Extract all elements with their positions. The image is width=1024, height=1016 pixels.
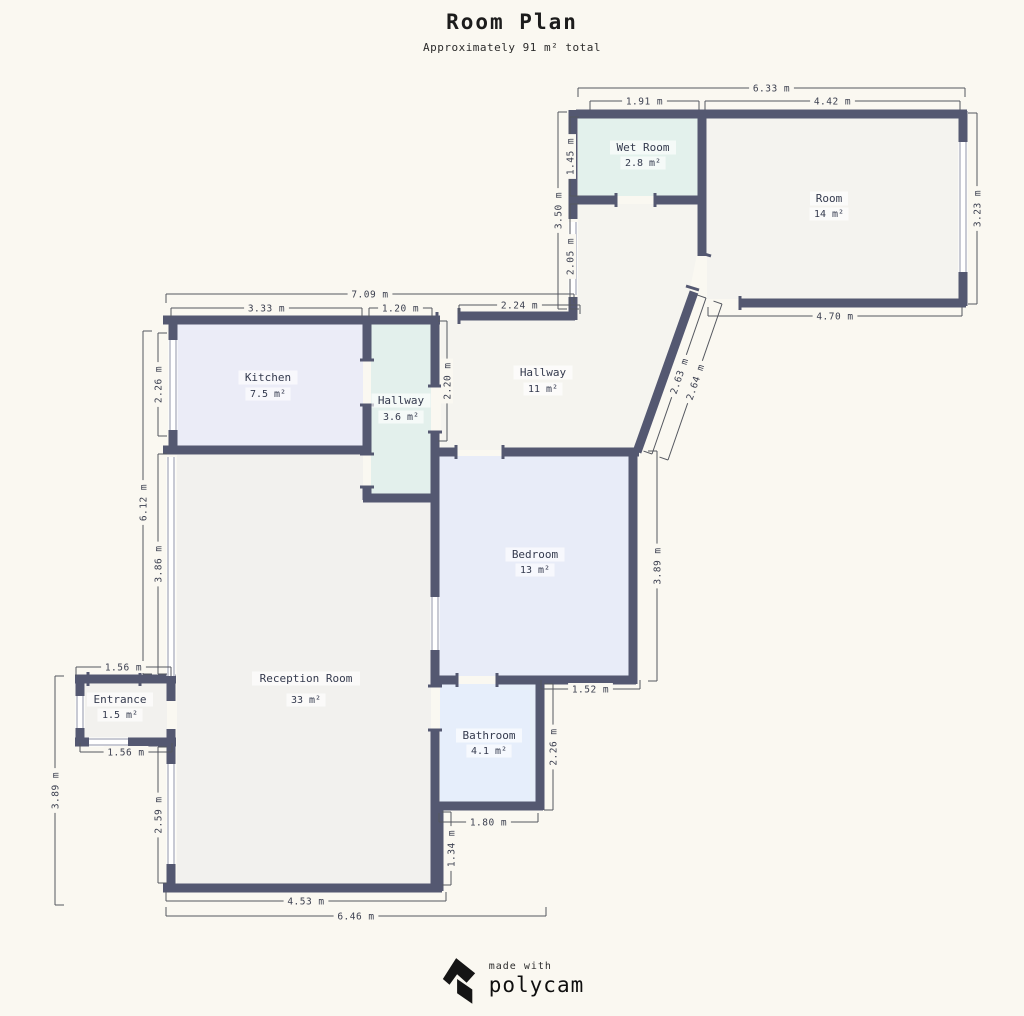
- svg-text:2.59 m: 2.59 m: [154, 796, 165, 833]
- svg-text:2.20 m: 2.20 m: [443, 362, 454, 399]
- window: [432, 597, 438, 650]
- room-reception-room: [177, 455, 431, 884]
- svg-text:3.23 m: 3.23 m: [973, 190, 984, 227]
- window: [960, 142, 966, 272]
- dimension-26-2.26-m: 2.26 m: [544, 684, 560, 810]
- svg-text:1.56 m: 1.56 m: [105, 663, 142, 674]
- svg-text:4.53 m: 4.53 m: [287, 897, 324, 908]
- plan-footer: made with polycam: [0, 954, 1024, 1004]
- room-bedroom-label: Bedroom: [512, 548, 559, 561]
- dimension-28-1.34-m: 1.34 m: [442, 812, 458, 885]
- svg-text:2.26 m: 2.26 m: [154, 366, 165, 403]
- room-entrance-label: Entrance: [94, 693, 147, 706]
- dimension-0-6.33-m: 6.33 m: [578, 82, 965, 97]
- floor-plan-page: Room Plan Approximately 91 m² total 6.33…: [0, 0, 1024, 1016]
- dimension-9-3.33-m: 3.33 m: [171, 302, 362, 317]
- room-wet-room-label: Wet Room: [617, 141, 670, 154]
- svg-text:2.26 m: 2.26 m: [549, 728, 560, 765]
- dimension-20-3.89-m: 3.89 m: [49, 676, 64, 905]
- footer-credit: made with polycam: [489, 961, 585, 997]
- svg-text:3.33 m: 3.33 m: [248, 304, 285, 315]
- svg-text:4.70 m: 4.70 m: [816, 312, 853, 323]
- svg-text:4.42 m: 4.42 m: [814, 97, 851, 108]
- window: [168, 764, 174, 864]
- window: [170, 340, 176, 430]
- svg-text:7.09 m: 7.09 m: [351, 290, 388, 301]
- room-bathroom: [440, 684, 536, 803]
- svg-text:6.33 m: 6.33 m: [753, 84, 790, 95]
- room-hallway-upper-label: Hallway: [520, 366, 567, 379]
- dimension-23-6.46-m: 6.46 m: [166, 907, 546, 923]
- room-kitchen-label: Kitchen: [245, 371, 291, 384]
- room-bedroom-area-label: 13 m²: [520, 565, 550, 576]
- dimension-21-2.59-m: 2.59 m: [152, 747, 167, 883]
- svg-text:1.45 m: 1.45 m: [566, 138, 577, 175]
- page-title: Room Plan: [0, 10, 1024, 34]
- dimension-18-1.56-m: 1.56 m: [76, 661, 171, 676]
- svg-text:3.89 m: 3.89 m: [51, 772, 62, 809]
- dimension-6-3.23-m: 3.23 m: [968, 113, 984, 304]
- window: [89, 739, 128, 745]
- dimension-10-1.20-m: 1.20 m: [369, 302, 432, 317]
- svg-text:2.05 m: 2.05 m: [566, 238, 577, 275]
- room-hallway-lower-label: Hallway: [378, 394, 425, 407]
- polycam-brand-text: polycam: [489, 973, 585, 997]
- dimension-16-6.12-m: 6.12 m: [137, 331, 152, 674]
- page-subtitle: Approximately 91 m² total: [0, 41, 1024, 54]
- room-kitchen-area-label: 7.5 m²: [250, 389, 286, 400]
- svg-text:1.20 m: 1.20 m: [382, 304, 419, 315]
- svg-text:1.91 m: 1.91 m: [626, 97, 663, 108]
- dimension-22-4.53-m: 4.53 m: [166, 892, 446, 908]
- made-with-text: made with: [489, 961, 585, 973]
- dimension-17-3.86-m: 3.86 m: [152, 454, 167, 674]
- dimension-2-4.42-m: 4.42 m: [705, 95, 960, 110]
- room-hallway-lower: [371, 324, 431, 494]
- svg-text:3.86 m: 3.86 m: [154, 545, 165, 582]
- svg-text:1.34 m: 1.34 m: [447, 830, 458, 867]
- window: [77, 696, 83, 728]
- room-reception-room-area-label: 33 m²: [291, 695, 321, 706]
- room-bathroom-label: Bathroom: [463, 729, 516, 742]
- dimension-7-4.70-m: 4.70 m: [708, 307, 962, 323]
- svg-text:3.89 m: 3.89 m: [653, 547, 664, 584]
- room-reception-room-label: Reception Room: [260, 672, 353, 685]
- floor-plan-svg: 6.33 m1.91 m4.42 m3.50 m1.45 m2.05 m3.23…: [0, 0, 1024, 1016]
- svg-text:1.80 m: 1.80 m: [470, 818, 507, 829]
- room-wet-room-area-label: 2.8 m²: [625, 158, 661, 169]
- window: [168, 457, 174, 676]
- dimension-25-3.89-m: 3.89 m: [648, 451, 664, 681]
- svg-text:3.50 m: 3.50 m: [554, 192, 565, 229]
- room-bathroom-area-label: 4.1 m²: [471, 746, 507, 757]
- room-entrance-area-label: 1.5 m²: [102, 710, 138, 721]
- polycam-logo-icon: [440, 954, 478, 1004]
- floor-plan-canvas: 6.33 m1.91 m4.42 m3.50 m1.45 m2.05 m3.23…: [0, 0, 1024, 1016]
- room-room-area-label: 14 m²: [814, 209, 844, 220]
- svg-text:1.52 m: 1.52 m: [572, 685, 609, 696]
- dimension-15-2.26-m: 2.26 m: [152, 333, 167, 436]
- svg-text:2.24 m: 2.24 m: [501, 301, 538, 312]
- svg-text:1.56 m: 1.56 m: [107, 748, 144, 759]
- svg-text:6.46 m: 6.46 m: [337, 912, 374, 923]
- room-kitchen: [177, 324, 363, 446]
- room-hallway-upper-area-label: 11 m²: [528, 384, 558, 395]
- svg-text:6.12 m: 6.12 m: [139, 484, 150, 521]
- room-room-label: Room: [816, 192, 843, 205]
- plan-header: Room Plan Approximately 91 m² total: [0, 6, 1024, 54]
- room-hallway-lower-area-label: 3.6 m²: [383, 412, 419, 423]
- dimension-1-1.91-m: 1.91 m: [590, 95, 699, 110]
